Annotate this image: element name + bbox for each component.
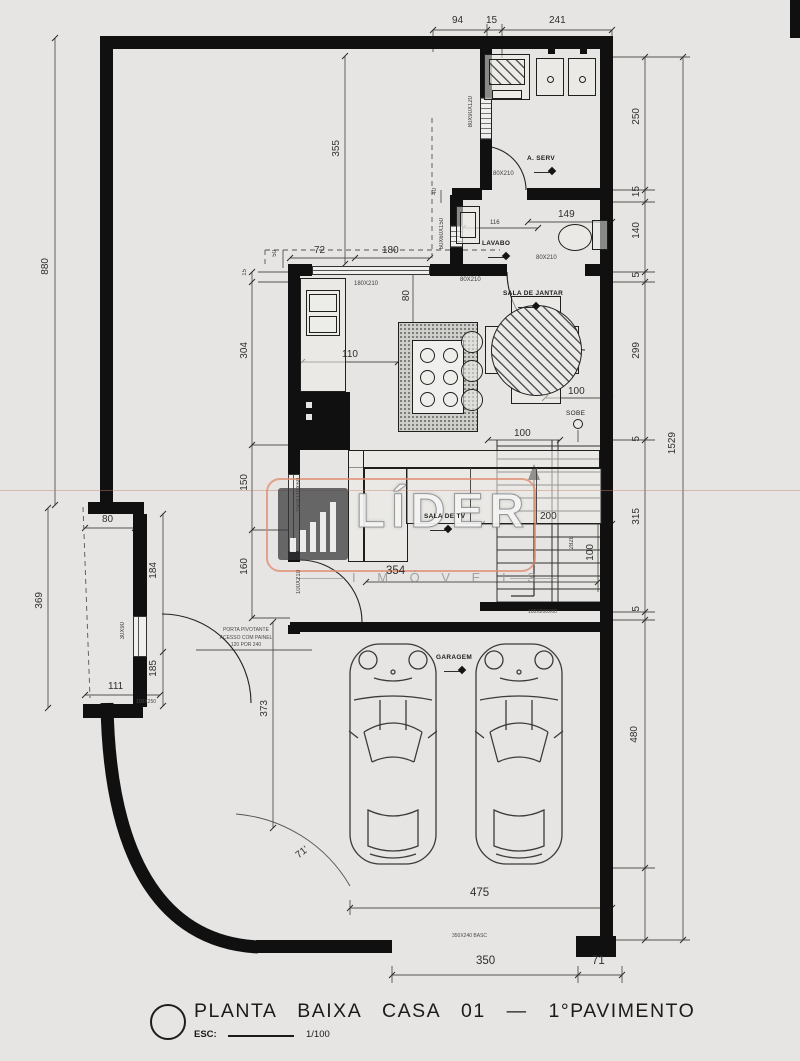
burner [443,348,458,363]
kitchen-sink-bowl [309,294,337,312]
dim-label: 5 [632,272,642,278]
toilet-tank [592,220,608,250]
area-tag-icon [534,172,554,178]
dim-label: 355 [332,140,342,157]
watermark-dash [296,578,344,579]
dim-label: 100 [568,387,585,397]
wall-corner-br [576,936,616,957]
dim-label: 880 [41,258,51,275]
opening-label: 80X210 [460,277,481,283]
page-title: PLANTA BAIXA CASA 01 — 1°PAVIMENTO [194,1000,695,1023]
scale-label: ESC: [194,1029,217,1040]
room-label-laundry: A. SERV [527,155,555,162]
tank-drain [579,76,586,83]
bar [320,512,326,552]
sobe-circle [573,419,583,429]
burner [443,370,458,385]
bar [330,502,336,552]
dim-label: 80 [102,515,113,525]
dim-label: 110 [342,350,358,360]
opening-label: 30X90 [120,622,126,639]
area-tag-icon [488,257,508,263]
fridge-detail [306,402,312,408]
toilet-bowl [558,224,592,251]
dining-table [491,305,582,396]
scale-line [228,1035,294,1037]
opening-label: 350X240 BASC [452,934,487,939]
dim-label: 71 [592,956,605,968]
area-tag-icon [444,671,464,677]
stool [461,331,483,353]
dim-label: 111 [108,682,123,692]
floorplan-sheet: LÍDER I M Ó V E I S 94 15 241 250 15 140… [0,0,800,1061]
opening-label: 180X210 [354,281,378,287]
dim-label: 180 [382,246,399,256]
opening-label: 100X250 [136,700,156,705]
dim-label: 72 [314,246,325,256]
dim-label: 50 [272,250,278,257]
window-laundry [480,97,492,140]
scale-value: 1/100 [306,1029,330,1040]
dim-label: 100 [586,544,596,561]
window-porch [133,616,147,657]
dim-label: 299 [632,342,642,359]
dim-label: 185 [149,660,159,677]
sofa-cushion-line [536,468,537,524]
dim-label: 15 [486,16,497,26]
faucet-icon [548,46,555,54]
wall-bottom [256,940,392,953]
fridge-block [298,392,350,450]
wall-front-a [288,264,312,276]
wall-front-c [585,264,613,276]
watermark-dash [510,578,558,579]
opening-label: 80X90X120 [468,96,474,127]
dim-label: 373 [260,700,270,717]
burner [420,348,435,363]
burner [443,392,458,407]
wall-porch-bottom [83,704,143,718]
dim-label: 250 [632,108,642,125]
dim-label: 241 [549,16,566,26]
opening-label: 80X210 [536,255,557,261]
dim-label: 15 [242,269,248,276]
note-line: 120 POR 240 [186,642,306,650]
dim-label: 116 [490,220,500,226]
stool [461,360,483,382]
area-tag-icon [518,307,538,313]
plan-note: PORTA PIVOTANTE ACESSO COM PAINEL 120 PO… [186,627,306,650]
wall-laundry-left-b [480,140,492,190]
bar [300,530,306,552]
wall-laundry-lavabo-b [527,188,613,200]
dim-label: 149 [558,210,575,220]
fridge-detail [306,414,312,420]
dim-label: 369 [35,592,45,609]
wall-porch-left-a [133,514,147,616]
watermark-barchart-icon [278,488,348,560]
burner [420,392,435,407]
curved-wall [107,703,258,947]
dim-label: 5 [632,436,642,442]
opening-label: 60X60X150 [439,218,445,249]
door-arcs [162,146,585,703]
dim-label: 150 [240,474,250,491]
wall-garage-front [290,622,612,632]
dim-label: 2828 [569,536,575,549]
wall-left [100,36,113,508]
page-edge-artifact [790,0,800,38]
dim-label: 15 [632,186,642,197]
washing-machine-hatch [489,59,525,85]
kitchen-sink-bowl [309,316,337,333]
window-kitchen [312,266,430,275]
dim-label: 5 [632,606,642,612]
faucet-icon [580,46,587,54]
wall-front-b [430,264,507,276]
dim-label: 100 [514,429,531,439]
note-line: ACESSO COM PAINEL [186,635,306,643]
dim-label: 40 [432,188,438,195]
washer-panel [492,90,522,99]
area-tag-icon [430,530,450,536]
dim-label: 200 [540,512,557,522]
lavabo-sink-bowl [460,212,476,238]
opening-label: 100X210 [296,570,302,594]
car-icon [475,644,563,864]
sofa-back [348,450,600,468]
stairs-up-label: SOBE [566,410,585,417]
stool [461,389,483,411]
dim-label: 160 [240,558,250,575]
car-icon [349,644,437,864]
opening-label: 80X210 [493,171,514,177]
dim-label: 1529 [668,432,678,454]
dim-label: 140 [632,222,642,239]
note-line: PORTA PIVOTANTE [186,627,306,635]
dim-label: 480 [630,726,640,743]
dim-label: 304 [240,342,250,359]
burner [420,370,435,385]
dim-label: 94 [452,16,463,26]
arc-dimension-line [236,814,350,886]
wall-porch-top [88,502,144,514]
dim-label: 184 [149,562,159,579]
room-label-garage: GARAGEM [436,654,472,661]
wall-top [100,36,613,49]
dim-label: 80 [402,290,412,301]
opening-label: 150X110X60 [296,478,302,512]
title-circle-icon [150,1004,186,1040]
room-label-tv: SALA DE TV [424,513,465,520]
dim-label: 315 [632,508,642,525]
tank-drain [547,76,554,83]
room-label-dining: SALA DE JANTAR [503,290,563,297]
room-label-lavabo: LAVABO [482,240,510,247]
dim-label: 475 [470,888,489,900]
watermark-logo-box: LÍDER [266,478,536,572]
dim-label: 350 [476,956,495,968]
dim-label: 354 [386,566,405,578]
dim-label: 100X200X00 [528,610,557,615]
bar [310,522,316,552]
bar [290,538,296,552]
